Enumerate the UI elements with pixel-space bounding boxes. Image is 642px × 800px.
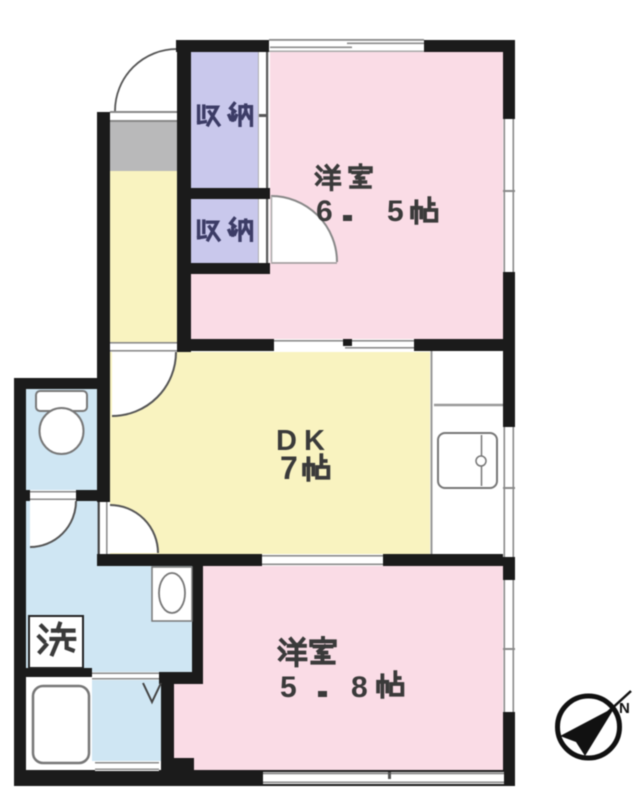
svg-text:7: 7 [280,450,298,486]
svg-text:5: 5 [387,195,404,228]
svg-text:5: 5 [280,671,297,704]
svg-text:8: 8 [351,671,368,704]
svg-text:N: N [619,700,630,717]
svg-text:6: 6 [316,195,333,228]
